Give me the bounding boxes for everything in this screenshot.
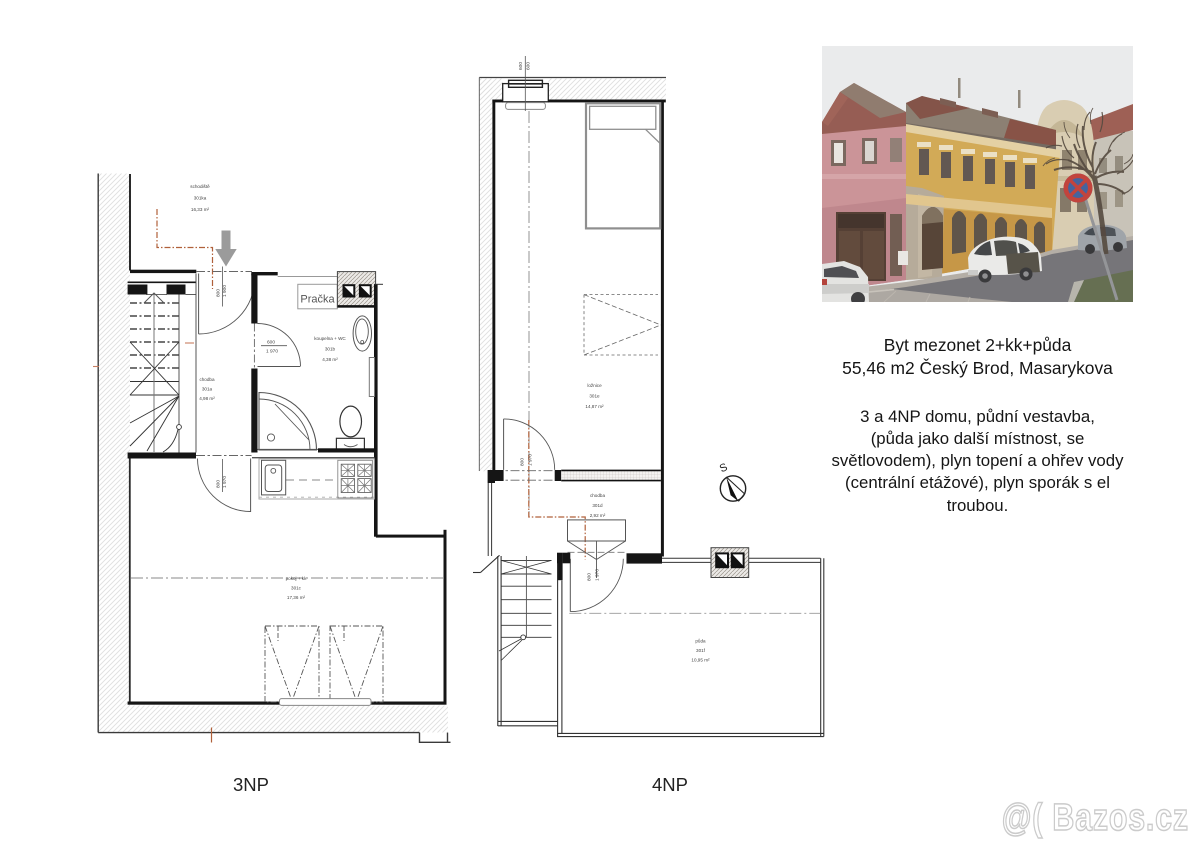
svg-text:1 970: 1 970 xyxy=(528,454,534,466)
svg-text:301e: 301e xyxy=(589,394,600,399)
svg-text:800: 800 xyxy=(520,458,526,466)
svg-text:koupelna + WC: koupelna + WC xyxy=(314,336,346,341)
svg-text:17,36 m²: 17,36 m² xyxy=(287,595,306,600)
svg-text:3NP: 3NP xyxy=(233,774,269,795)
svg-text:600: 600 xyxy=(518,62,524,70)
svg-text:chodba: chodba xyxy=(590,493,606,498)
svg-text:800: 800 xyxy=(587,573,593,581)
svg-text:301f: 301f xyxy=(696,648,706,653)
svg-text:16,33 m²: 16,33 m² xyxy=(191,207,210,212)
svg-text:ložnice: ložnice xyxy=(587,383,602,388)
svg-text:chodba: chodba xyxy=(199,377,215,382)
svg-text:Pračka: Pračka xyxy=(300,294,335,306)
svg-text:schodiště: schodiště xyxy=(190,184,210,189)
svg-text:4,38 m²: 4,38 m² xyxy=(322,357,338,362)
svg-text:10,95 m²: 10,95 m² xyxy=(691,658,710,663)
svg-text:1 970: 1 970 xyxy=(595,569,601,581)
svg-text:4NP: 4NP xyxy=(652,774,688,795)
svg-text:600: 600 xyxy=(525,62,531,70)
svg-text:pokoj + kk: pokoj + kk xyxy=(286,576,308,581)
svg-text:2,92 m²: 2,92 m² xyxy=(590,513,606,518)
svg-text:301d: 301d xyxy=(592,503,603,508)
svg-text:1 970: 1 970 xyxy=(222,476,228,488)
svg-text:4,98 m²: 4,98 m² xyxy=(199,396,215,401)
svg-text:půda: půda xyxy=(695,638,706,644)
svg-text:1 900: 1 900 xyxy=(222,285,228,297)
svg-text:1 970: 1 970 xyxy=(266,349,278,355)
svg-text:S: S xyxy=(718,461,730,475)
svg-text:14,87 m²: 14,87 m² xyxy=(585,404,604,409)
svg-text:301c: 301c xyxy=(291,586,302,591)
svg-text:301ka: 301ka xyxy=(194,196,207,201)
svg-text:800: 800 xyxy=(216,480,222,488)
svg-text:800: 800 xyxy=(216,289,222,297)
svg-text:301a: 301a xyxy=(202,387,213,392)
svg-text:301b: 301b xyxy=(325,347,336,352)
svg-text:600: 600 xyxy=(267,340,275,346)
